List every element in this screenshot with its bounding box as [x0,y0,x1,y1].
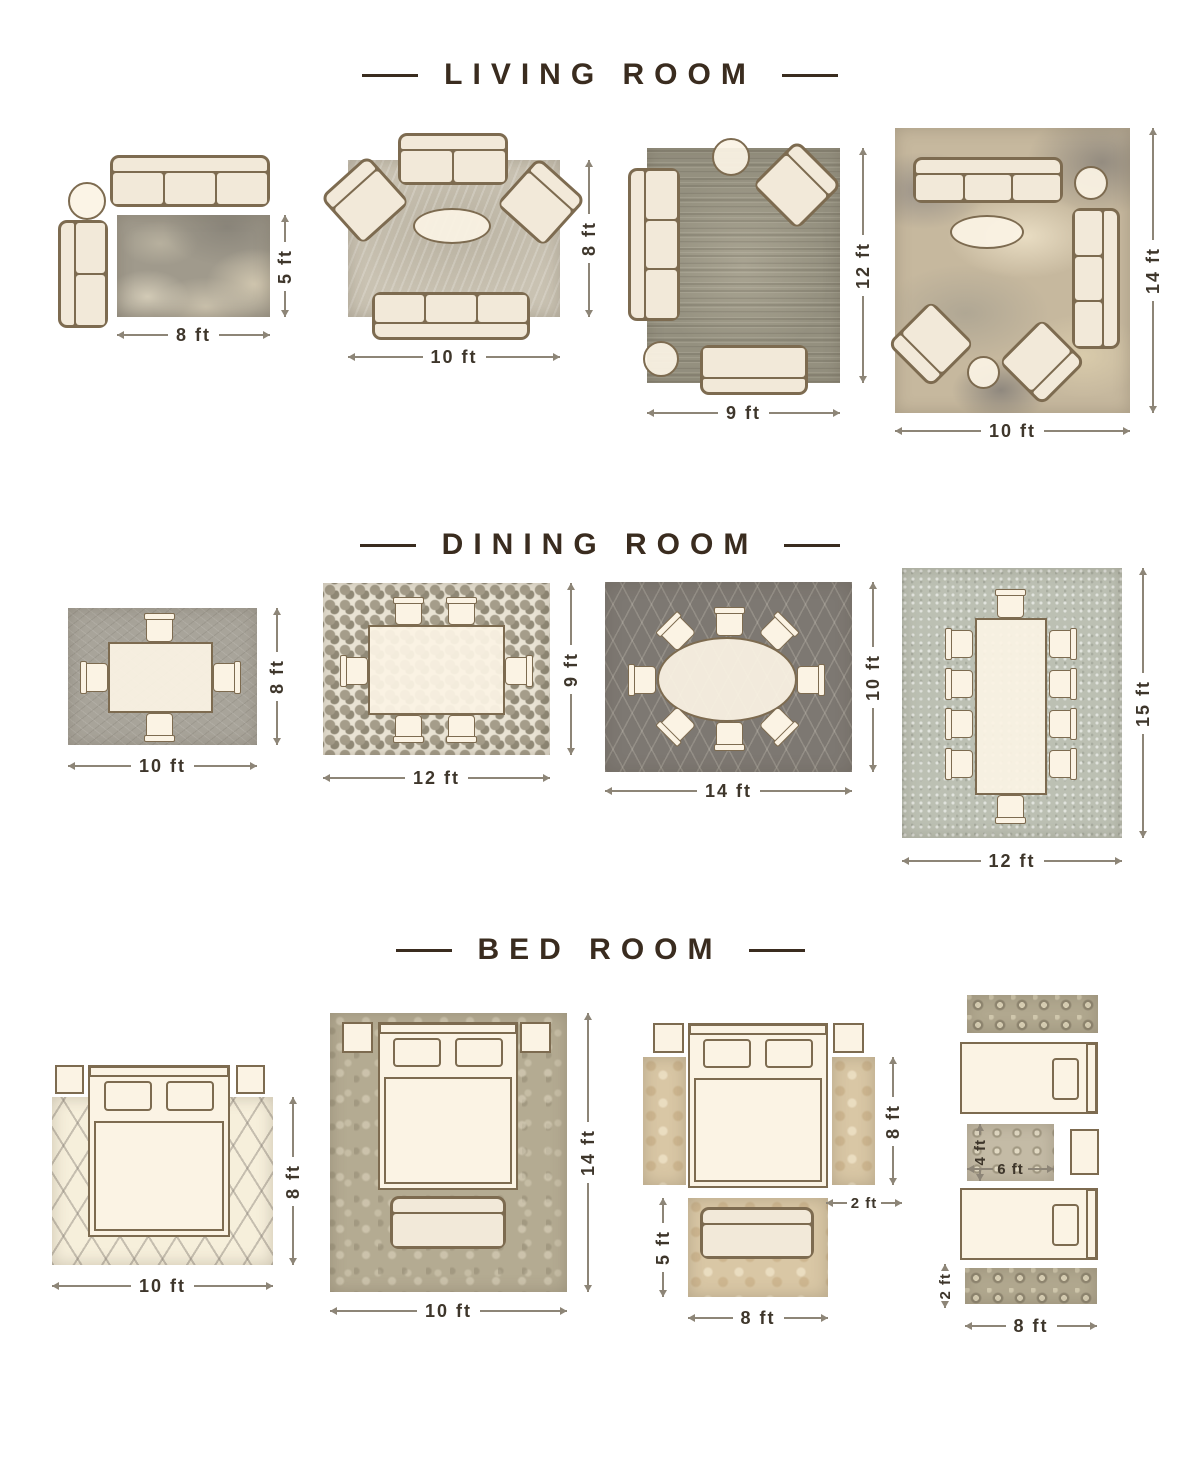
sofa-cushion [1075,211,1102,255]
dimension-label: 14 ft [578,1122,599,1183]
dimension-line [1028,1168,1054,1170]
dimension-line [570,583,572,645]
pillow [393,1038,441,1067]
rug [117,215,270,317]
chair-back [628,664,635,696]
sofa-cushion [1013,175,1060,200]
dining-chair [146,713,173,739]
sofa-seats [76,223,105,325]
dimension-label: 5 ft [653,1223,674,1272]
title-dash [360,544,416,547]
dining-chair [948,670,973,698]
blanket [384,1077,512,1184]
dimension-line [1152,128,1154,240]
height-dimension: 9 ft [560,583,582,755]
two-seat-sofa [58,220,108,328]
chair-back [995,817,1026,824]
dimension-line [588,160,590,214]
dining-chair [395,600,422,625]
dimension-line [688,1317,733,1319]
width-dimension: 12 ft [902,850,1122,872]
runner-width-dimension: 2 ft [826,1192,902,1214]
chair-back [340,655,347,687]
blanket [94,1121,224,1231]
nightstand [833,1023,864,1053]
sofa-seats [646,171,677,318]
dining-room-title: DINING ROOM [0,528,1200,562]
long-dining-table [975,618,1047,795]
sofa-back [393,1199,503,1212]
three-seat-sofa [913,157,1063,203]
width-dimension: 10 ft [52,1275,273,1297]
chair-back [995,589,1026,596]
title-dash [396,949,452,952]
sofa-back [61,223,74,325]
dimension-line [881,1202,902,1204]
nightstand [342,1022,373,1053]
round-side-table [1074,166,1108,200]
dimension-line [902,860,981,862]
pillow [703,1039,751,1068]
round-side-table [712,138,750,176]
sofa-cushion [401,151,452,182]
dimension-line [480,1310,567,1312]
height-dimension: 8 ft [578,160,600,317]
dining-chair [948,750,973,778]
dimension-line [276,701,278,745]
dimension-line [647,412,718,414]
dimension-line [965,1325,1006,1327]
chair-back [714,744,745,751]
dining-table [108,642,213,713]
sofa-seats [393,1214,503,1246]
dimension-line [1152,301,1154,413]
height-dimension: 8 ft [282,1097,304,1265]
chair-back [818,664,825,696]
sofa-cushion [217,173,267,204]
dimension-line [588,263,590,317]
dimension-label: 2 ft [847,1195,882,1212]
chair-back [526,655,533,687]
dimension-line [323,777,405,779]
dimension-line [872,708,874,773]
dimension-label: 9 ft [561,645,582,694]
chair-back [234,661,241,694]
width-dimension: 10 ft [895,420,1130,442]
dimension-line [1044,430,1130,432]
dimension-line [292,1097,294,1157]
chair-back [446,736,477,743]
chair-back [393,736,424,743]
chair-back [714,607,745,614]
pillow [1052,1058,1079,1100]
dining-chair [213,663,238,692]
bench [700,1207,814,1259]
dimension-line [587,1013,589,1122]
sofa-back [703,1210,811,1223]
dining-chair [1049,710,1074,738]
height-dimension: 8 ft [266,608,288,745]
dimension-label: 8 ft [1006,1316,1057,1337]
twin-bed [960,1042,1098,1114]
headboard [1086,1189,1097,1259]
queen-bed [378,1022,518,1190]
dining-table [368,625,505,715]
living-room-title: LIVING ROOM [0,58,1200,92]
sofa-cushion [426,295,475,322]
runner-rug [832,1057,875,1185]
dimension-line [1044,860,1123,862]
sofa-cushion [76,275,105,325]
dimension-label: 8 ft [579,214,600,263]
dimension-line [1142,568,1144,673]
width-dimension: 10 ft [330,1300,567,1322]
dimension-label: 6 ft [993,1161,1028,1178]
dimension-line [194,765,257,767]
height-dimension: 5 ft [274,215,296,317]
runner-rug [965,1268,1097,1304]
three-seat-sofa [628,168,680,321]
sofa-cushion [1075,302,1102,346]
chair-back [945,748,952,780]
dimension-line [1142,734,1144,839]
section-title-text: LIVING ROOM [444,58,756,92]
round-side-table [643,341,679,377]
chair-back [1070,628,1077,660]
dimension-line [872,582,874,647]
dimension-line [769,412,840,414]
sofa-cushion [393,1214,503,1246]
sofa-cushion [113,173,163,204]
sofa-cushion [454,151,505,182]
pillow [765,1039,813,1068]
sofa-back [113,158,267,171]
height-dimension: 10 ft [862,582,884,772]
chair-back [945,708,952,740]
dimension-line [892,1146,894,1186]
dimension-label: 10 ft [981,421,1044,442]
sofa-cushion [375,295,424,322]
dining-chair [146,616,173,642]
dining-chair [997,592,1024,618]
chair-back [1070,708,1077,740]
between-rug-width-dimension: 6 ft [967,1158,1054,1180]
sofa-cushion [1075,257,1102,301]
dimension-line [605,790,697,792]
sofa-cushion [478,295,527,322]
dimension-line [944,1303,946,1308]
runner-height-dimension: 8 ft [882,1057,904,1185]
chair-back [945,668,952,700]
dimension-label: 8 ft [267,652,288,701]
blanket [694,1078,822,1182]
loveseat [398,133,508,185]
section-title-text: DINING ROOM [442,528,759,562]
rug-size-guide: LIVING ROOM 8 ft 5 ft 10 ft 8 ft [0,0,1200,1467]
nightstand [236,1065,265,1094]
sofa-seats [916,175,1060,200]
nightstand [653,1023,684,1053]
dimension-line [68,765,131,767]
chair-back [80,661,87,694]
twin-bed [960,1188,1098,1260]
title-dash [749,949,805,952]
width-dimension: 10 ft [68,755,257,777]
dining-chair [1049,670,1074,698]
queen-bed [88,1065,230,1237]
dimension-line [862,296,864,383]
pillow [166,1081,214,1111]
runner-rug [643,1057,686,1185]
dimension-line [292,1206,294,1266]
pillow [1052,1204,1079,1246]
dimension-line [1057,1325,1098,1327]
sofa-back [401,136,505,149]
dimension-line [348,356,423,358]
dimension-line [826,1202,847,1204]
sofa-back [916,160,1060,173]
dining-chair [448,600,475,625]
dining-chair [716,722,743,748]
sofa-cushion [76,223,105,273]
dining-chair [797,666,822,694]
three-seat-sofa [372,292,530,340]
dimension-label: 10 ft [131,756,194,777]
sofa-seats [401,151,505,182]
sofa-seats [113,173,267,204]
sofa-cushion [646,270,677,318]
chair-back [144,735,175,742]
dimension-line [219,334,270,336]
dimension-label: 12 ft [981,851,1044,872]
dining-chair [448,715,475,740]
loveseat [700,345,808,395]
dimension-label: 5 ft [275,242,296,291]
dining-chair [631,666,656,694]
dimension-line [284,215,286,242]
runner-width-dimension: 8 ft [965,1315,1097,1337]
dimension-label: 8 ft [283,1157,304,1206]
dimension-label: 10 ft [863,647,884,708]
foot-rug-width-dimension: 8 ft [688,1307,828,1329]
headboard [89,1066,229,1077]
dimension-label: 10 ft [131,1276,194,1297]
nightstand [1070,1129,1099,1175]
dimension-line [662,1272,664,1297]
dimension-label: 15 ft [1133,673,1154,734]
round-side-table [967,356,1000,389]
dimension-label: 2 ft [937,1269,954,1304]
title-dash [782,74,838,77]
sofa-seats [703,1225,811,1256]
sofa-cushion [646,171,677,219]
oval-coffee-table [950,215,1024,249]
width-dimension: 14 ft [605,780,852,802]
dimension-line [52,1285,131,1287]
runner-height-dimension: 2 ft [934,1264,956,1308]
dimension-line [979,1124,981,1135]
sofa-cushion [703,1225,811,1256]
dimension-line [784,1317,829,1319]
dimension-line [862,148,864,235]
dining-chair [505,657,530,685]
dimension-line [662,1198,664,1223]
dining-chair [716,610,743,636]
dimension-line [468,777,550,779]
headboard [689,1024,827,1035]
dimension-label: 8 ft [168,325,219,346]
height-dimension: 12 ft [852,148,874,383]
nightstand [55,1065,84,1094]
dining-chair [948,710,973,738]
sofa-cushion [703,348,805,377]
foot-rug-height-dimension: 5 ft [652,1198,674,1297]
dimension-line [587,1183,589,1292]
sofa-seats [703,348,805,377]
runner-rug [967,995,1098,1033]
sofa-cushion [165,173,215,204]
pillow [455,1038,503,1067]
three-seat-sofa [1072,208,1120,349]
dimension-label: 9 ft [718,403,769,424]
height-dimension: 14 ft [577,1013,599,1292]
dimension-line [570,694,572,756]
sofa-cushion [916,175,963,200]
dimension-line [967,1168,993,1170]
sofa-seats [375,295,527,322]
dimension-line [284,291,286,318]
dimension-line [276,608,278,652]
dimension-label: 10 ft [417,1301,480,1322]
headboard [1086,1043,1097,1113]
dimension-label: 12 ft [853,235,874,296]
title-dash [784,544,840,547]
dimension-line [760,790,852,792]
dimension-line [194,1285,273,1287]
sofa-back [375,324,527,337]
three-seat-sofa [110,155,270,207]
dimension-label: 14 ft [697,781,760,802]
round-side-table [68,182,106,220]
width-dimension: 12 ft [323,767,550,789]
width-dimension: 9 ft [647,402,840,424]
oval-coffee-table [413,208,491,244]
sofa-cushion [646,221,677,269]
dimension-line [330,1310,417,1312]
width-dimension: 10 ft [348,346,560,368]
chair-back [144,613,175,620]
sofa-cushion [965,175,1012,200]
dimension-line [486,356,561,358]
sofa-seats [1075,211,1102,346]
dimension-label: 12 ft [405,768,468,789]
dining-chair [1049,750,1074,778]
section-title-text: BED ROOM [478,933,723,967]
sofa-back [631,171,644,318]
chair-back [1070,748,1077,780]
pillow [104,1081,152,1111]
chair-back [1070,668,1077,700]
chair-back [446,597,477,604]
dimension-line [892,1057,894,1097]
dimension-label: 8 ft [883,1097,904,1146]
dimension-line [117,334,168,336]
dining-chair [1049,630,1074,658]
height-dimension: 14 ft [1142,128,1164,413]
dining-chair [395,715,422,740]
height-dimension: 15 ft [1132,568,1154,838]
bench [390,1196,506,1249]
bed-room-title: BED ROOM [0,933,1200,967]
width-dimension: 8 ft [117,324,270,346]
dining-chair [948,630,973,658]
title-dash [362,74,418,77]
dining-chair [83,663,108,692]
dimension-label: 14 ft [1143,240,1164,301]
nightstand [520,1022,551,1053]
chair-back [945,628,952,660]
headboard [379,1023,517,1034]
chair-back [393,597,424,604]
dining-chair [343,657,368,685]
dimension-label: 10 ft [423,347,486,368]
dimension-line [895,430,981,432]
dimension-label: 8 ft [733,1308,784,1329]
sofa-back [703,379,805,392]
sofa-back [1104,211,1117,346]
dining-chair [997,795,1024,821]
queen-bed [688,1023,828,1188]
